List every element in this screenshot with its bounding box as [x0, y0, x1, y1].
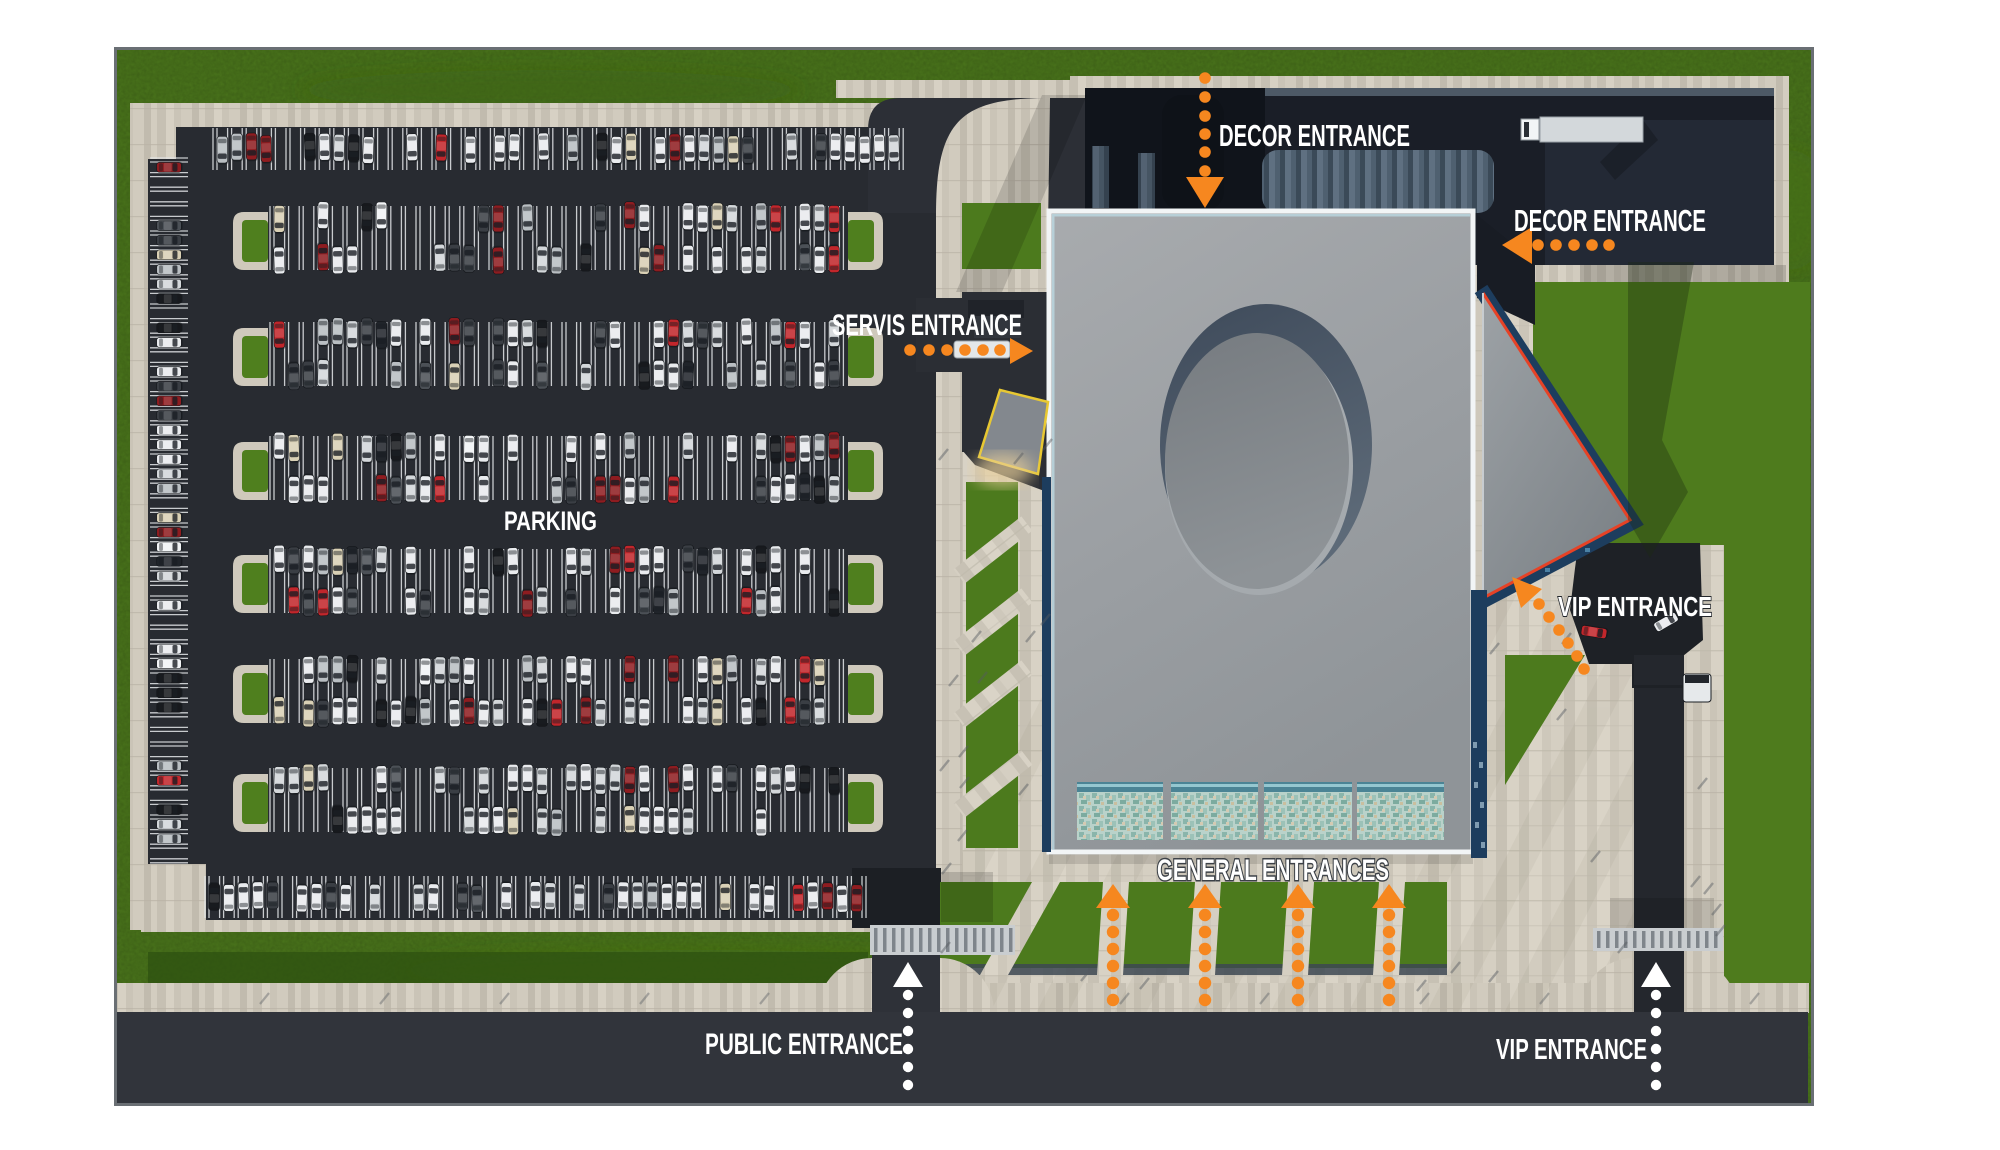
svg-text:DECOR ENTRANCE: DECOR ENTRANCE: [1514, 203, 1706, 238]
svg-text:PARKING: PARKING: [504, 506, 597, 536]
svg-text:PUBLIC ENTRANCE: PUBLIC ENTRANCE: [705, 1028, 903, 1061]
svg-text:VIP ENTRANCE: VIP ENTRANCE: [1496, 1034, 1647, 1066]
svg-text:GENERAL ENTRANCES: GENERAL ENTRANCES: [1157, 854, 1389, 887]
svg-text:SERVIS ENTRANCE: SERVIS ENTRANCE: [832, 309, 1022, 342]
svg-text:VIP ENTRANCE: VIP ENTRANCE: [1558, 591, 1712, 622]
svg-text:DECOR ENTRANCE: DECOR ENTRANCE: [1219, 118, 1410, 153]
